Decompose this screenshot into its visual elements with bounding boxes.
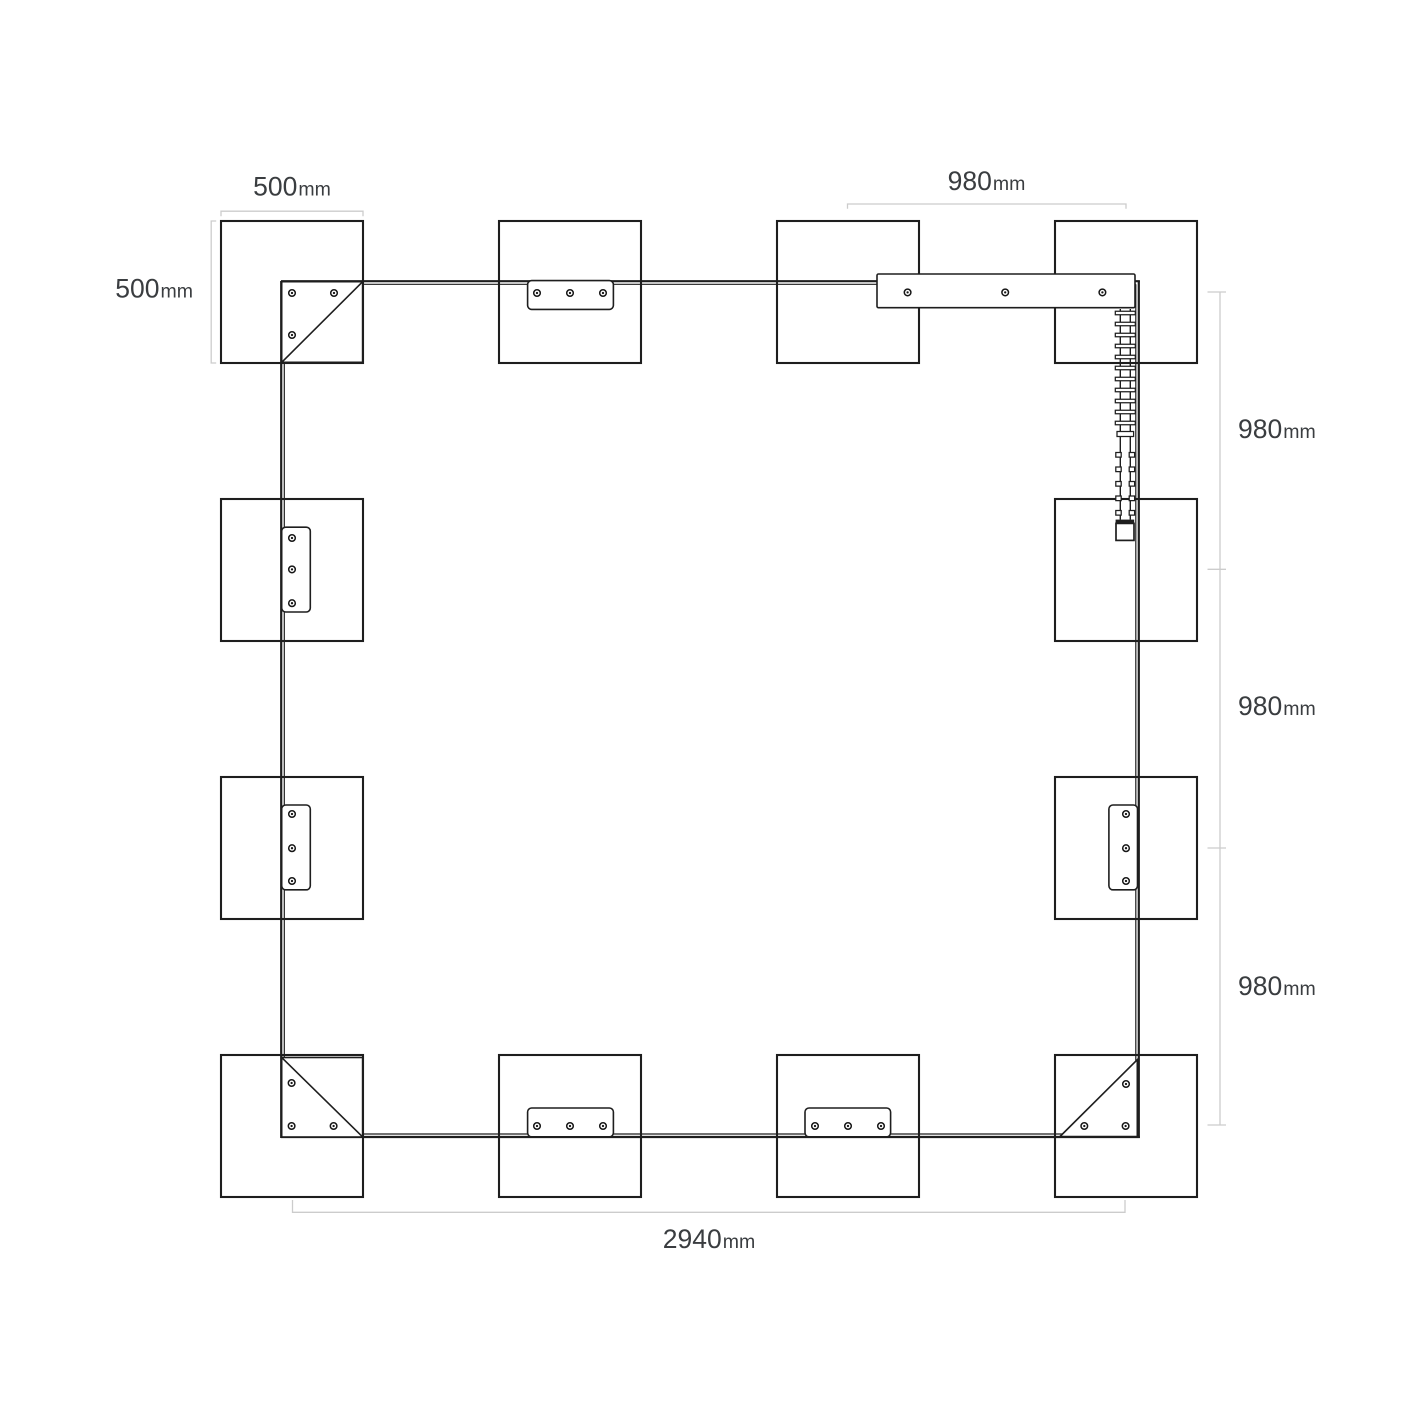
screw-hole <box>288 1123 295 1130</box>
technical-drawing-canvas: 500mm 500mm 980mm 980mm 980mm 980mm 2940… <box>0 0 1417 1417</box>
dim-label-right-span-middle: 980mm <box>1238 691 1316 721</box>
corner-bracket-bottom-left <box>282 1058 363 1138</box>
dim-label-top-span: 980mm <box>948 166 1026 196</box>
joint-plate-right-lower <box>1109 805 1138 890</box>
screw-hole <box>1122 1123 1129 1130</box>
screw-hole <box>600 290 607 297</box>
screw-hole <box>600 1123 607 1130</box>
screw-hole <box>845 1123 852 1130</box>
screw-hole <box>1123 1081 1130 1088</box>
joint-plate-left-upper <box>282 527 311 612</box>
screw-hole <box>289 845 296 852</box>
zipper-end-stop <box>1117 432 1134 437</box>
dim-line-left-post-height <box>211 221 216 363</box>
screw-hole <box>1099 289 1106 296</box>
zipper-slider <box>1116 523 1134 540</box>
joint-plate <box>282 805 311 890</box>
screw-hole <box>534 1123 541 1130</box>
dim-line-top-span <box>848 204 1127 209</box>
screw-hole <box>289 535 296 542</box>
joint-plate-bottom-mid-right <box>805 1108 891 1137</box>
joint-plate-top-middle <box>528 281 614 310</box>
screw-hole <box>288 1080 295 1087</box>
joint-plate-top-right-long <box>877 274 1135 308</box>
dim-line-top-post-width <box>221 211 363 216</box>
posts <box>221 221 1197 1197</box>
dim-label-left-post-height: 500mm <box>115 274 193 304</box>
screw-hole <box>1081 1123 1088 1130</box>
screw-hole <box>878 1123 885 1130</box>
screw-hole <box>289 290 296 297</box>
corner-bracket-top-left <box>282 282 363 363</box>
screw-hole <box>330 1123 337 1130</box>
dim-label-right-span-upper: 980mm <box>1238 414 1316 444</box>
screw-hole <box>1002 289 1009 296</box>
dim-line-bottom-span <box>293 1200 1126 1212</box>
screw-hole <box>1123 878 1130 885</box>
screw-hole <box>812 1123 819 1130</box>
screw-hole <box>534 290 541 297</box>
screw-hole <box>289 878 296 885</box>
screw-hole <box>567 1123 574 1130</box>
dim-label-top-post-width: 500mm <box>253 172 331 202</box>
joint-plate-left-lower <box>282 805 311 890</box>
screw-hole <box>904 289 911 296</box>
dim-label-right-span-lower: 980mm <box>1238 971 1316 1001</box>
frame-rails <box>281 281 1140 1138</box>
screw-hole <box>1123 811 1130 818</box>
screw-hole <box>331 290 338 297</box>
screw-hole <box>289 600 296 607</box>
screw-hole <box>1123 845 1130 852</box>
screw-hole <box>289 811 296 818</box>
joint-plate-bottom-mid-left <box>528 1108 614 1137</box>
screw-hole <box>289 566 296 573</box>
dim-label-bottom-span: 2940mm <box>663 1224 755 1254</box>
screw-hole <box>567 290 574 297</box>
screw-hole <box>289 332 296 339</box>
